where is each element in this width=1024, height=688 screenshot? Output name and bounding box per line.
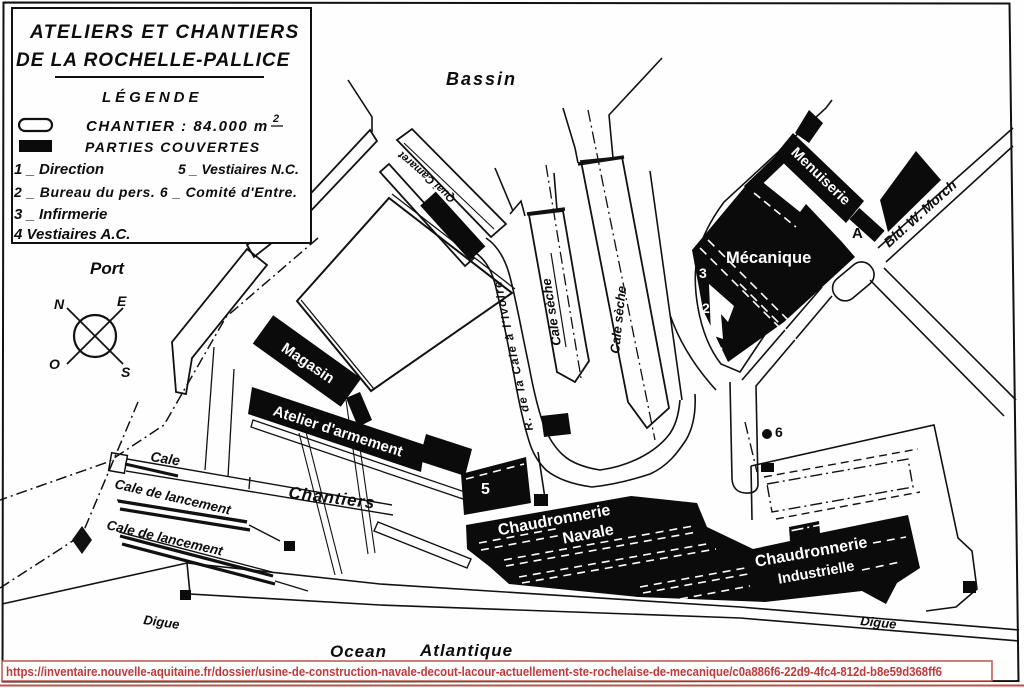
svg-text:LÉGENDE: LÉGENDE — [102, 89, 203, 106]
svg-text:O: O — [49, 356, 60, 372]
svg-text:3: 3 — [699, 265, 707, 281]
svg-text:3 _ Infirmerie: 3 _ Infirmerie — [14, 206, 107, 223]
svg-text:Mécanique: Mécanique — [726, 249, 811, 267]
svg-text:Ocean: Ocean — [330, 642, 387, 661]
svg-text:CHANTIER : 84.000 m: CHANTIER : 84.000 m — [86, 118, 269, 135]
svg-text:Bassin: Bassin — [446, 69, 517, 89]
svg-text:DE LA ROCHELLE-PALLICE: DE LA ROCHELLE-PALLICE — [16, 50, 291, 71]
svg-text:4 Vestiaires A.C.: 4 Vestiaires A.C. — [13, 226, 130, 243]
svg-text:2: 2 — [272, 113, 279, 125]
svg-text:6: 6 — [775, 424, 783, 440]
svg-text:1 _ Direction: 1 _ Direction — [14, 161, 104, 178]
svg-text:2 _ Bureau du pers. 6 _ Comité: 2 _ Bureau du pers. 6 _ Comité d'Entre. — [13, 184, 297, 200]
svg-text:S: S — [121, 364, 131, 380]
svg-text:E: E — [117, 293, 127, 309]
svg-text:A: A — [852, 225, 863, 242]
svg-text:2: 2 — [702, 300, 710, 316]
svg-text:5: 5 — [481, 481, 490, 498]
svg-text:N: N — [54, 296, 65, 312]
svg-text:PARTIES COUVERTES: PARTIES COUVERTES — [85, 139, 261, 155]
svg-text:Port: Port — [90, 259, 125, 278]
svg-text:ATELIERS ET CHANTIERS: ATELIERS ET CHANTIERS — [29, 22, 300, 43]
svg-text:https://inventaire.nouvelle-aq: https://inventaire.nouvelle-aquitaine.fr… — [6, 665, 942, 679]
svg-text:1: 1 — [717, 344, 725, 360]
svg-text:Atlantique: Atlantique — [419, 641, 513, 660]
svg-text:5 _ Vestiaires N.C.: 5 _ Vestiaires N.C. — [178, 161, 299, 177]
